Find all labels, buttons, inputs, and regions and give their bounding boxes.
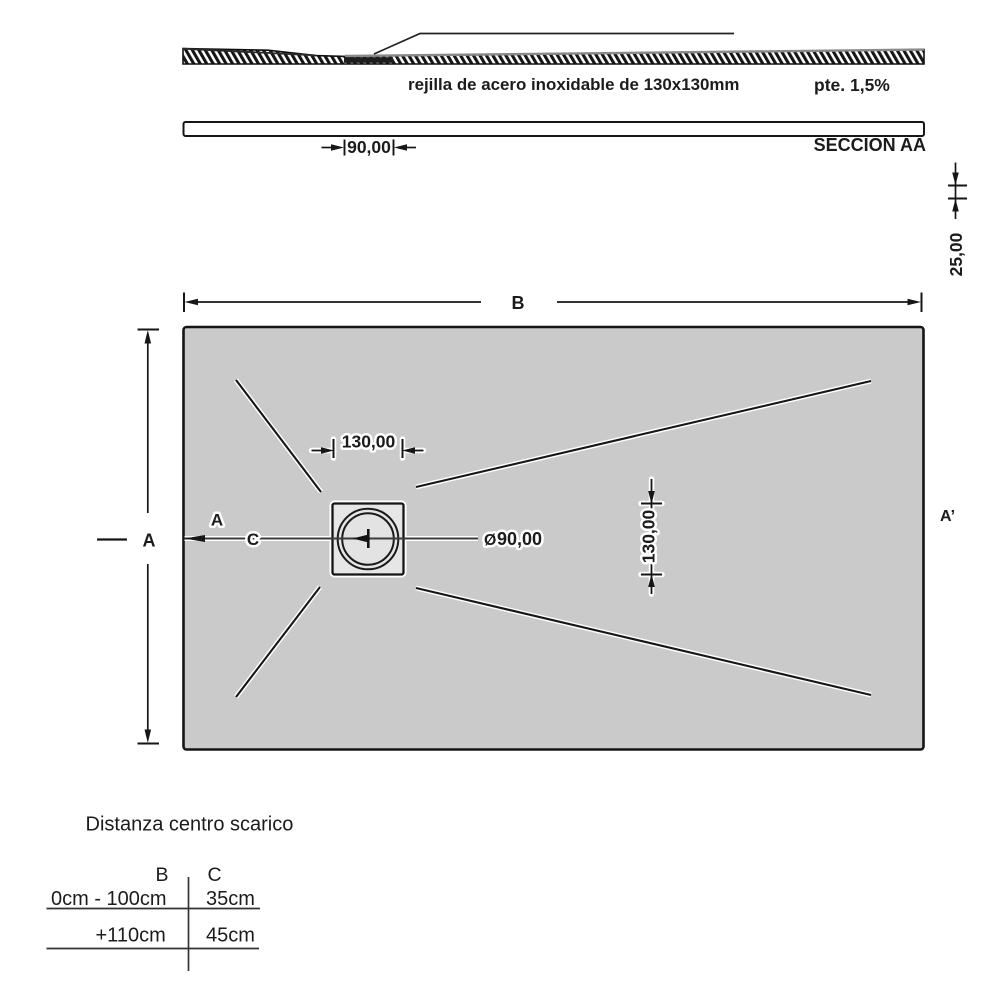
svg-text:130,00: 130,00 xyxy=(639,509,659,563)
svg-text:C: C xyxy=(207,864,221,886)
svg-text:35cm: 35cm xyxy=(206,888,255,910)
svg-text:A’: A’ xyxy=(940,508,955,525)
svg-text:A: A xyxy=(211,511,223,530)
svg-text:pte. 1,5%: pte. 1,5% xyxy=(814,75,890,95)
svg-text:45cm: 45cm xyxy=(206,925,255,947)
svg-text:C: C xyxy=(247,530,259,549)
svg-text:B: B xyxy=(512,293,525,313)
svg-text:90,00: 90,00 xyxy=(497,529,542,549)
svg-text:130,00: 130,00 xyxy=(342,432,396,452)
svg-text:rejilla de acero inoxidable de: rejilla de acero inoxidable de 130x130mm xyxy=(408,75,739,94)
svg-text:SECCION AA: SECCION AA xyxy=(814,135,926,155)
svg-text:Ø: Ø xyxy=(484,532,496,549)
svg-text:+110cm: +110cm xyxy=(96,925,166,947)
svg-text:25,00: 25,00 xyxy=(946,232,966,276)
svg-text:90,00: 90,00 xyxy=(347,137,391,157)
svg-text:Distanza centro scarico: Distanza centro scarico xyxy=(86,814,294,836)
svg-text:A: A xyxy=(143,531,156,551)
svg-text:B: B xyxy=(155,864,168,886)
svg-text:0cm - 100cm: 0cm - 100cm xyxy=(51,888,167,910)
